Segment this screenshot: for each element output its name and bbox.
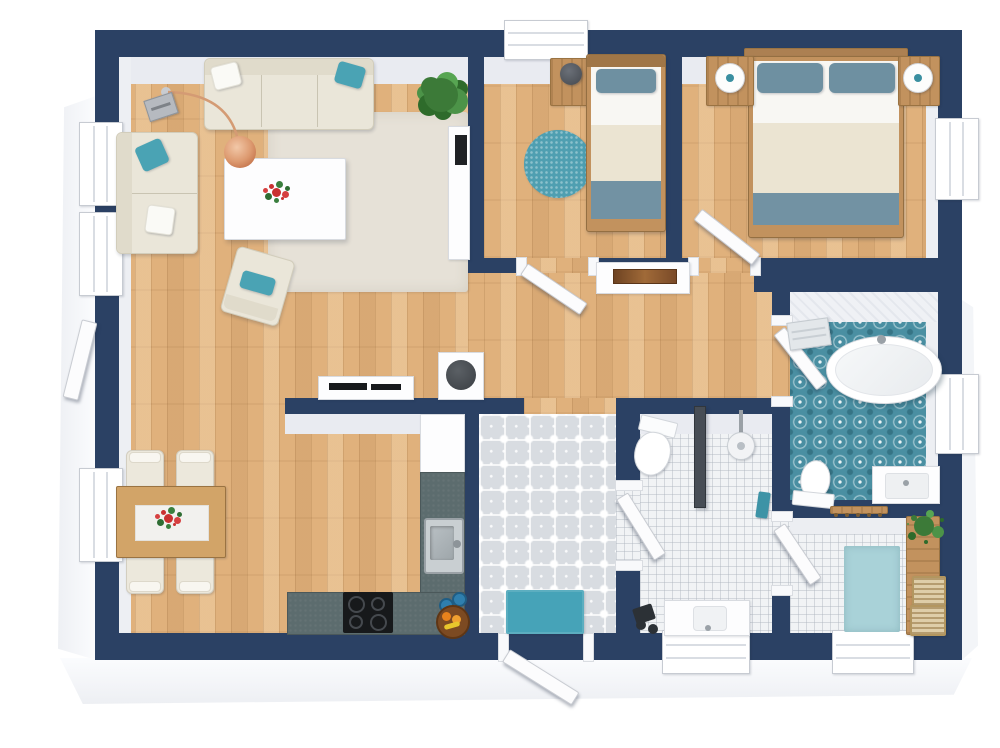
stool-dark	[648, 624, 658, 634]
toilet-bathroom	[792, 458, 837, 508]
wall-living-bedroom1	[468, 57, 484, 273]
lamp-shade	[224, 136, 256, 168]
potted-plant-living	[424, 78, 458, 112]
window-small-bedroom	[504, 20, 588, 60]
sink-faucet	[453, 540, 461, 548]
window-frame-line	[962, 378, 964, 450]
shower-head	[727, 432, 755, 460]
shower-room-vanity	[664, 600, 750, 636]
bed-blanket-teal	[753, 193, 899, 225]
window-bathroom	[935, 374, 979, 454]
building-base-right	[962, 300, 978, 660]
floor-hall-connector	[524, 398, 616, 414]
bathtub-basin	[835, 344, 933, 396]
entry-doormat	[506, 590, 584, 634]
bed-blanket-teal	[591, 181, 661, 219]
loveseat-backrest	[117, 133, 132, 253]
dining-chair	[176, 552, 214, 594]
shower-head-center	[737, 442, 745, 450]
loveseat-seam	[132, 193, 197, 194]
dining-chair	[126, 552, 164, 594]
sofa-seam	[317, 75, 318, 127]
window-frame-line	[106, 126, 108, 202]
bed-pillow-teal	[757, 63, 823, 93]
vanity-faucet	[903, 480, 909, 486]
door-jamb	[615, 480, 643, 491]
window-shower-room	[662, 630, 750, 674]
wall-bathroom-west-b	[772, 398, 790, 518]
kitchen-sink	[424, 518, 464, 574]
door-jamb	[583, 633, 594, 662]
window-master-bedroom	[935, 118, 979, 200]
table-lamp-left	[715, 63, 745, 93]
media-console	[318, 376, 414, 400]
kitchen-tall-cabinet	[420, 414, 465, 474]
table-runner	[135, 505, 209, 541]
wall-bedroom1-bedroom2	[666, 57, 682, 273]
table-lamp-dark	[560, 63, 582, 85]
wall-hook	[867, 513, 871, 517]
window-frame-line	[836, 657, 910, 659]
av-receiver	[329, 383, 367, 390]
bathtub-faucet	[877, 335, 886, 344]
door-jamb	[771, 511, 793, 522]
stool-dark	[636, 620, 646, 630]
wall-entry-north-stub	[479, 398, 524, 414]
fruit-banana	[444, 621, 461, 630]
chair-backrest	[179, 581, 211, 592]
bed-duvet	[753, 123, 899, 193]
double-bed	[748, 56, 904, 238]
wall-kitchen-north	[285, 398, 479, 414]
door-jamb	[615, 560, 643, 571]
chair-backrest	[179, 452, 211, 463]
tv-sideboard	[448, 126, 470, 260]
coffee-table-flowers	[272, 188, 281, 197]
chair-backrest	[129, 452, 161, 463]
window-frame-line	[949, 378, 951, 450]
table-lamp-right	[903, 63, 933, 93]
round-top-appliance	[438, 352, 484, 400]
window-frame-line	[949, 122, 951, 196]
burner	[370, 614, 387, 631]
storage-basket	[912, 576, 946, 607]
av-receiver	[371, 384, 401, 390]
window-frame-line	[836, 644, 910, 646]
hall-console	[596, 262, 690, 294]
storage-basket	[910, 605, 946, 636]
bed-pillow-teal	[829, 63, 895, 93]
bed-headboard	[587, 55, 665, 67]
lamp-finial	[914, 74, 922, 82]
bathroom-vanity	[872, 466, 940, 504]
burner	[371, 597, 385, 611]
bathtub	[826, 336, 942, 404]
window-frame-line	[106, 472, 108, 558]
loveseat-pillow-white	[144, 204, 176, 236]
window-frame-line	[666, 657, 746, 659]
tv	[455, 135, 467, 165]
window-utility	[832, 630, 914, 674]
burner	[349, 615, 363, 629]
appliance-round-top	[446, 360, 476, 390]
wall-hook	[878, 513, 882, 517]
window-frame-line	[508, 32, 584, 34]
wall-hook	[834, 513, 838, 517]
speaker-grille	[151, 102, 171, 111]
burner	[348, 596, 365, 613]
bed-duvet	[591, 125, 661, 181]
wall-master-bathroom	[754, 258, 938, 292]
door-jamb	[771, 396, 793, 407]
door-jamb	[771, 585, 793, 596]
window-frame-line	[508, 44, 584, 46]
floor-plan	[0, 0, 1000, 748]
wall-face-bathroom	[790, 292, 938, 322]
towel-fold	[792, 334, 826, 341]
window-frame-line	[666, 644, 746, 646]
wall-hook	[856, 513, 860, 517]
fruit-orange	[442, 612, 451, 621]
cooktop	[343, 592, 393, 633]
dining-flowers	[164, 514, 173, 523]
fruit-bowl	[436, 605, 470, 639]
round-rug	[524, 130, 592, 198]
window-frame-line	[106, 216, 108, 292]
towel-rail	[786, 317, 831, 351]
sink-basin	[430, 526, 454, 560]
hall-artwork	[613, 269, 677, 284]
towel-fold	[791, 327, 825, 334]
vanity-basin	[885, 473, 929, 499]
vanity-faucet	[705, 625, 711, 631]
utility-rug	[844, 546, 900, 632]
window-frame-line	[93, 472, 95, 558]
bed-pillow-teal	[596, 69, 656, 93]
wall-hook	[845, 513, 849, 517]
potted-plant-utility	[914, 516, 934, 536]
single-bed	[586, 54, 666, 232]
lamp-finial	[726, 74, 734, 82]
nightstand-small-bedroom	[550, 58, 590, 106]
window-frame-line	[93, 216, 95, 292]
arc-floor-lamp	[140, 78, 270, 188]
shower-glass-panel	[694, 406, 706, 508]
window-frame-line	[93, 126, 95, 202]
window-frame-line	[962, 122, 964, 196]
chair-backrest	[129, 581, 161, 592]
